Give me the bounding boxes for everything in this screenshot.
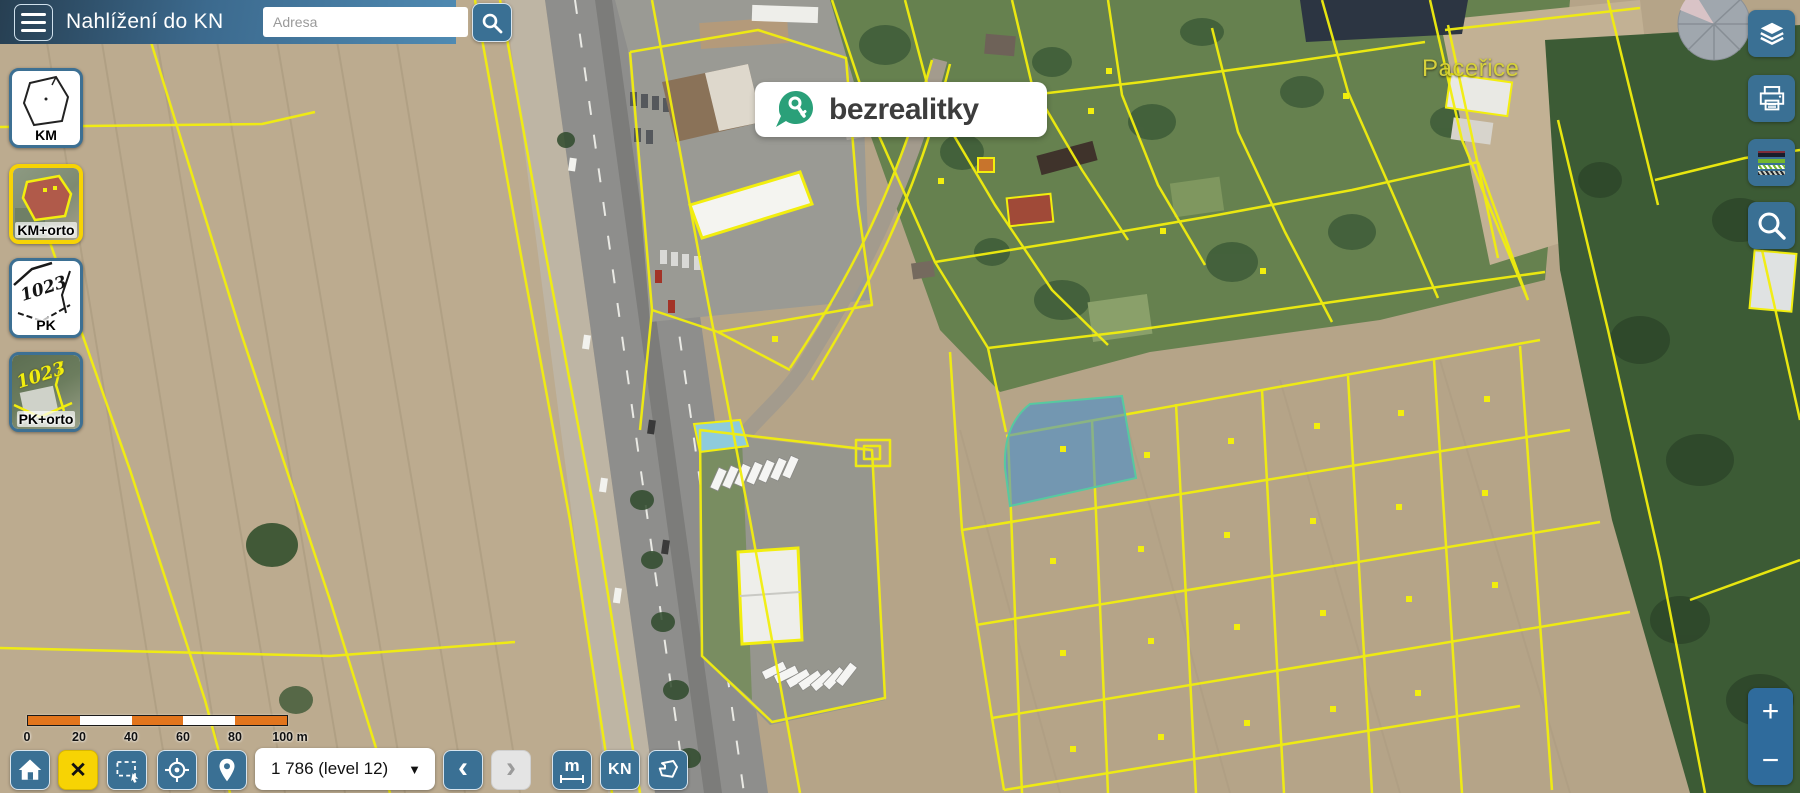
scale-label: 0 [24,730,31,744]
scale-bar [27,715,288,726]
zoom-level-value: 1 786 (level 12) [271,759,408,779]
legend-button[interactable] [1748,139,1795,186]
app-window: Paceřice bezrealitky Nahlížení do KN KM [0,0,1800,793]
layer-button-km[interactable]: KM [9,68,83,148]
search-icon [1755,209,1789,243]
layer-button-label: KM+orto [13,222,79,238]
polygon-icon [653,755,683,785]
kn-info-button[interactable]: KN [600,750,640,790]
layers-button[interactable] [1748,10,1795,57]
key-pin-icon [773,90,815,130]
address-search-input[interactable] [263,7,468,37]
chevron-left-icon: ‹ [458,753,468,783]
scale-label: 80 [228,730,242,744]
home-icon [15,755,45,785]
scale-label: 60 [176,730,190,744]
plus-icon: + [1762,695,1780,729]
search-icon [480,11,504,35]
polygon-select-button[interactable] [648,750,688,790]
printer-icon [1756,83,1788,115]
measure-icon: m [558,757,586,784]
kn-label: KN [608,761,632,779]
close-icon: ✕ [69,758,87,783]
zoom-out-button[interactable]: − [1748,737,1793,786]
map-place-label: Paceřice [1422,55,1519,83]
zoom-level-select[interactable]: 1 786 (level 12) ▼ [255,748,435,790]
layer-button-label: PK [12,317,80,333]
rectangle-select-icon [111,754,143,786]
layer-button-km-orto[interactable]: KM+orto [9,164,83,244]
marker-button[interactable] [207,750,247,790]
locate-button[interactable] [157,750,197,790]
layer-button-label: KM [12,127,80,143]
minus-icon: − [1762,744,1780,778]
crosshair-icon [161,754,193,786]
map-pin-icon [212,755,242,785]
home-button[interactable] [10,750,50,790]
scale-label: 20 [72,730,86,744]
layer-button-pk[interactable]: 1023 PK [9,258,83,338]
clear-selection-button[interactable]: ✕ [58,750,98,790]
measure-button[interactable]: m [552,750,592,790]
watermark-logo: bezrealitky [755,82,1047,137]
print-button[interactable] [1748,75,1795,122]
layers-icon [1756,18,1788,50]
chevron-down-icon: ▼ [408,762,421,777]
app-title: Nahlížení do KN [66,10,223,34]
zoom-control: + − [1748,688,1793,785]
scale-label: 40 [124,730,138,744]
zoom-in-button[interactable]: + [1748,688,1793,737]
map-search-button[interactable] [1748,202,1795,249]
layer-button-pk-orto[interactable]: 1023 PK+orto [9,352,83,432]
header-search-button[interactable] [472,3,512,42]
menu-button[interactable] [14,4,53,41]
watermark-text: bezrealitky [829,93,979,127]
rectangle-select-button[interactable] [107,750,147,790]
history-forward-button[interactable]: › [491,750,531,790]
legend-icon [1758,151,1785,175]
layer-button-label: PK+orto [12,411,80,427]
scale-label-end: 100 m [272,730,307,744]
history-back-button[interactable]: ‹ [443,750,483,790]
chevron-right-icon: › [506,753,516,783]
